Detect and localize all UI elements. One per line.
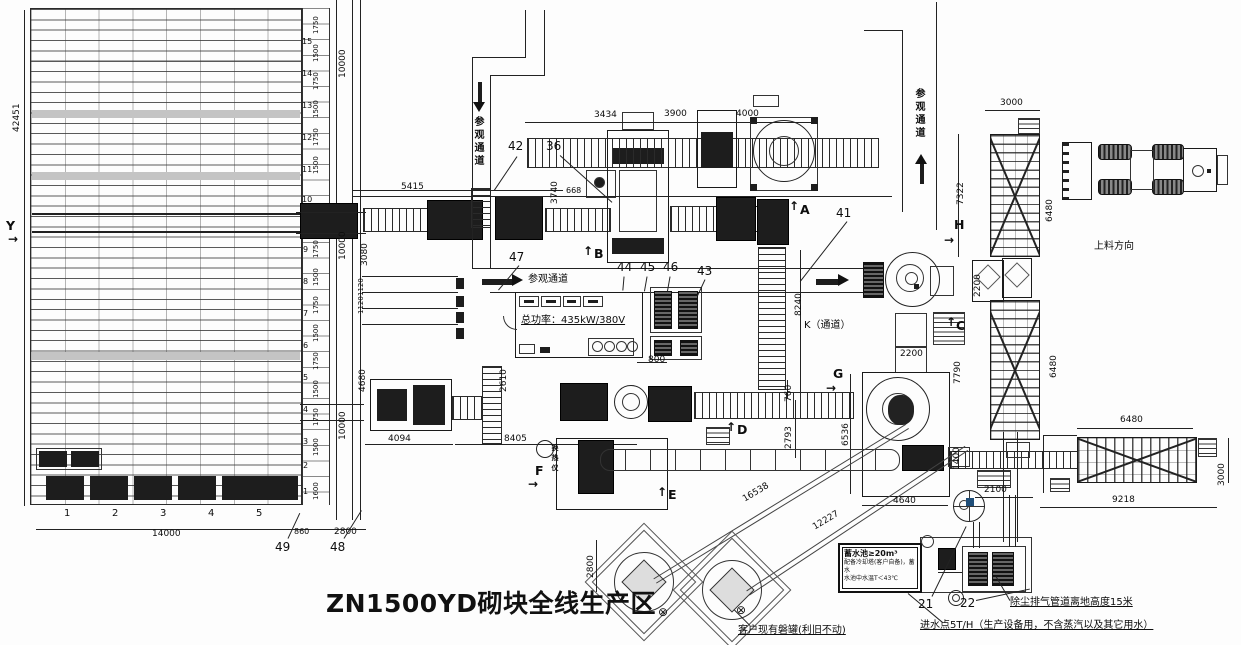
bay-number: 5: [256, 509, 262, 519]
dimension-label: 3740: [551, 181, 560, 204]
bay-number: 4: [208, 509, 214, 519]
dimension-label: 1120: [358, 296, 365, 314]
dimension-label: 6536: [842, 423, 851, 446]
leader-line: [667, 276, 671, 291]
row-number: 1: [303, 488, 308, 496]
dimension-label: 2100: [984, 486, 1007, 495]
dimension-label: 668: [566, 187, 581, 195]
dimension-label: 860: [294, 528, 309, 536]
row-number: 14: [302, 70, 312, 78]
dimension-label: 1120: [358, 278, 365, 296]
item-number: 44: [617, 261, 632, 273]
plant-layout-sheet: 蓄水池≥20m³ 配备冷却塔(客户自备)，蓄水 水池中水温T＜43℃ ZN150…: [0, 0, 1241, 645]
section-arrow: ↑: [789, 200, 799, 212]
leader-line: [800, 221, 848, 282]
passage-label: 参观通道: [472, 116, 482, 168]
section-label: G: [833, 368, 843, 381]
k-passage-label: K（通道）: [804, 321, 851, 331]
dimension-label: 2793: [785, 426, 794, 449]
bay-number: 2: [112, 509, 118, 519]
dimension-label: 760: [785, 385, 794, 402]
item-number: 41: [836, 207, 851, 219]
loading-direction-label: 上料方向: [1094, 242, 1134, 252]
dimension-label: 1500: [313, 438, 320, 456]
dimension-label: 4680: [359, 369, 368, 392]
row-number: 7: [303, 310, 308, 318]
row-number: 12: [302, 134, 312, 142]
dimension-label: 10000: [339, 231, 348, 260]
total-power-label: 总功率：435kW/380V: [521, 316, 625, 326]
leader-line: [498, 265, 519, 290]
item-number: 43: [697, 265, 712, 277]
section-label: D: [737, 424, 747, 437]
bay-number: 3: [160, 509, 166, 519]
dimension-label: 10000: [339, 49, 348, 78]
row-number: 13: [302, 102, 312, 110]
dimension-label: 5415: [401, 183, 424, 192]
section-label: F: [535, 465, 544, 478]
dimension-label: 1500: [313, 44, 320, 62]
row-number: 9: [303, 246, 308, 254]
leader-line: [697, 279, 706, 296]
bay-number: 1: [64, 509, 70, 519]
leader-line: [560, 155, 613, 203]
dimension-label: 16538: [742, 482, 771, 504]
section-arrow: →: [8, 233, 18, 245]
leader-line: [494, 156, 518, 191]
dimension-label: 1750: [313, 16, 320, 34]
dimension-label: 6480: [1046, 199, 1055, 222]
dimension-label: 1400: [953, 447, 962, 470]
section-arrow: →: [944, 234, 954, 246]
dimension-label: 3434: [594, 111, 617, 120]
valve-symbol: ⊗: [658, 606, 668, 618]
item-number: 22: [960, 597, 975, 609]
dimension-label: 8240: [795, 293, 804, 316]
row-number: 6: [303, 342, 308, 350]
section-label: H: [954, 219, 964, 232]
dimension-label: 2610: [500, 369, 509, 392]
item-number: 36: [546, 140, 561, 152]
row-number: 11: [302, 166, 312, 174]
leader-line: [644, 276, 648, 291]
dimension-label: 3000: [1000, 99, 1023, 108]
item-number: 49: [275, 541, 290, 553]
dimension-label: 14000: [152, 530, 181, 539]
leader-line: [996, 576, 1011, 601]
dimension-label: 1750: [313, 128, 320, 146]
water-inlet-note: 进水点5T/H（生产设备用，不含蒸汽以及其它用水）: [920, 621, 1153, 631]
dimension-label: 3000: [1218, 463, 1227, 486]
dust-pipe-note: 除尘排气管道离地高度15米: [1010, 598, 1133, 608]
dimension-label: 10000: [339, 411, 348, 440]
section-arrow: →: [826, 382, 836, 394]
dimension-label: 6480: [1050, 355, 1059, 378]
item-number: 46: [663, 261, 678, 273]
dimension-label: 7790: [954, 361, 963, 384]
dimension-label: 3080: [361, 243, 370, 266]
section-label: B: [594, 248, 604, 261]
row-number: 5: [303, 374, 308, 382]
dimension-label: 3900: [664, 110, 687, 119]
passage-label: 参观通道: [913, 88, 923, 140]
dimension-label: 6480: [1120, 416, 1143, 425]
row-number: 10: [302, 196, 312, 204]
dimension-label: 1500: [313, 100, 320, 118]
dimension-label: 1750: [313, 408, 320, 426]
section-arrow: ↑: [726, 421, 736, 433]
dimension-label: 1750: [313, 296, 320, 314]
dimension-label: 1750: [313, 72, 320, 90]
item-number: 42: [508, 140, 523, 152]
row-number: 4: [303, 406, 308, 414]
section-arrow: →: [528, 478, 538, 490]
dimension-label: 9218: [1112, 496, 1135, 505]
section-arrow: ↑: [946, 316, 956, 328]
dimension-label: 4094: [388, 435, 411, 444]
leader-line: [622, 276, 624, 290]
dimension-label: 1750: [313, 352, 320, 370]
section-arrow: ↑: [583, 245, 593, 257]
existing-tank-note: 客户现有磐罐(利旧不动): [738, 626, 846, 636]
dimension-label: 1600: [313, 482, 320, 500]
dimension-label: 2800: [587, 555, 596, 578]
section-label: A: [800, 204, 810, 217]
dimension-label: 2200: [900, 350, 923, 359]
dimension-label: 42451: [13, 103, 22, 132]
dimension-label: 12227: [812, 510, 841, 532]
dimension-label: 4000: [736, 110, 759, 119]
dimension-label: 4640: [893, 497, 916, 506]
dimension-label: 8405: [504, 435, 527, 444]
section-label: E: [668, 489, 677, 502]
dimension-label: 1500: [313, 380, 320, 398]
section-label: Y: [6, 220, 15, 233]
dimension-label: 1750: [313, 240, 320, 258]
row-number: 15: [302, 38, 312, 46]
dimension-label: 1500: [313, 268, 320, 286]
dimension-label: 1500: [313, 156, 320, 174]
annotation-layer: 5415343439004000300022008006682100464040…: [0, 0, 1241, 645]
dimension-label: 2200: [974, 274, 983, 297]
item-number: 47: [509, 251, 524, 263]
dimension-label: 7322: [957, 182, 966, 205]
section-arrow: ↑: [657, 486, 667, 498]
dimension-label: 1500: [313, 324, 320, 342]
row-number: 3: [303, 438, 308, 446]
row-number: 8: [303, 278, 308, 286]
item-number: 45: [640, 261, 655, 273]
section-label: C: [956, 320, 965, 333]
heat-exchanger-label: 换热仪: [551, 444, 558, 474]
passage-label: 参观通道: [528, 275, 568, 285]
item-number: 48: [330, 541, 345, 553]
row-number: 2: [303, 462, 308, 470]
leader-line: [932, 526, 967, 597]
dimension-label: 800: [648, 356, 665, 365]
